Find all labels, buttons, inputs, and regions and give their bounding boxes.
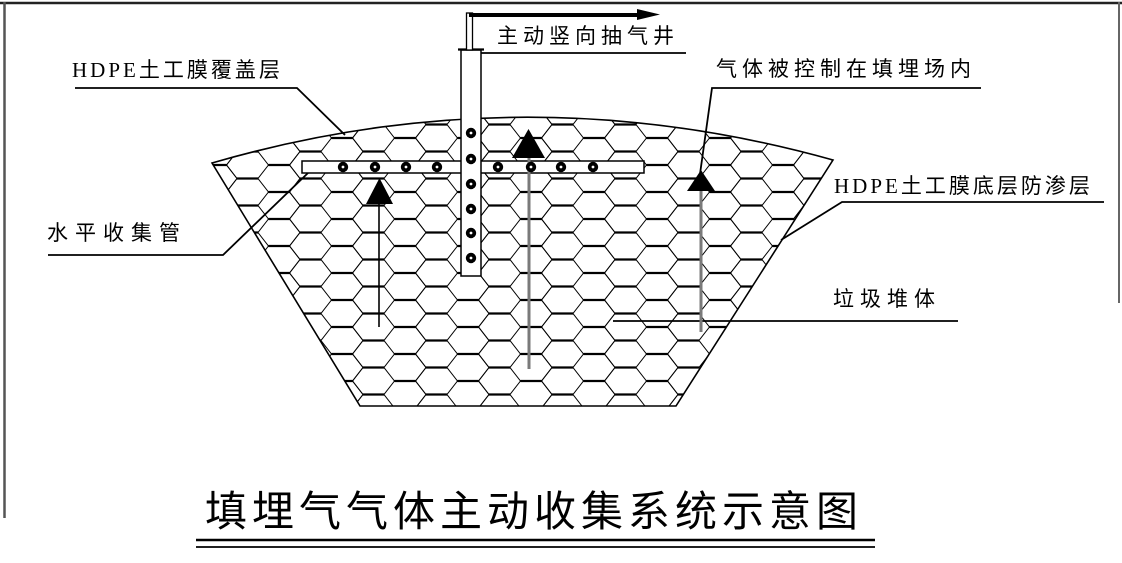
figure-title: 填埋气气体主动收集系统示意图 [205, 478, 863, 539]
leader-cover-layer [75, 88, 345, 135]
label-cover-layer: HDPE土工膜覆盖层 [72, 58, 283, 82]
leader-bottom-liner [781, 202, 1104, 240]
label-horizontal-pipe: 水平收集管 [47, 221, 187, 245]
title-underline [196, 540, 875, 547]
well-riser-pipe [467, 13, 473, 50]
label-gas-controlled: 气体被控制在填埋场内 [716, 57, 976, 81]
label-bottom-liner: HDPE土工膜底层防渗层 [834, 174, 1093, 198]
schematic-page: HDPE土工膜覆盖层 主动竖向抽气井 气体被控制在填埋场内 HDPE土工膜底层防… [0, 0, 1122, 563]
label-waste-body: 垃圾堆体 [833, 287, 941, 311]
extraction-direction-arrow-icon [469, 9, 660, 20]
label-extraction-well: 主动竖向抽气井 [497, 24, 679, 48]
